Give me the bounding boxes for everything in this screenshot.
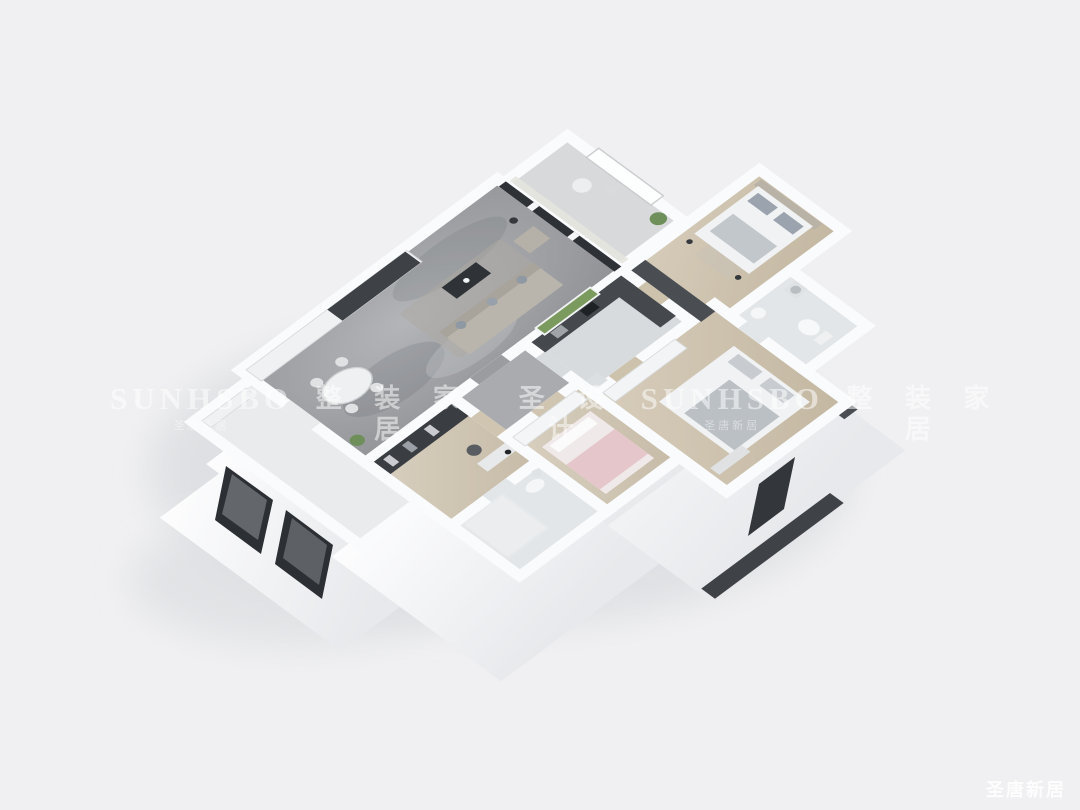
apartment-3d-floorplan-render: SUNHSBO 圣唐新居 整 装 家 居 圣 设 计 SUNHSBO 圣唐新居 … bbox=[0, 0, 1080, 810]
floorplan-svg bbox=[0, 0, 1080, 810]
